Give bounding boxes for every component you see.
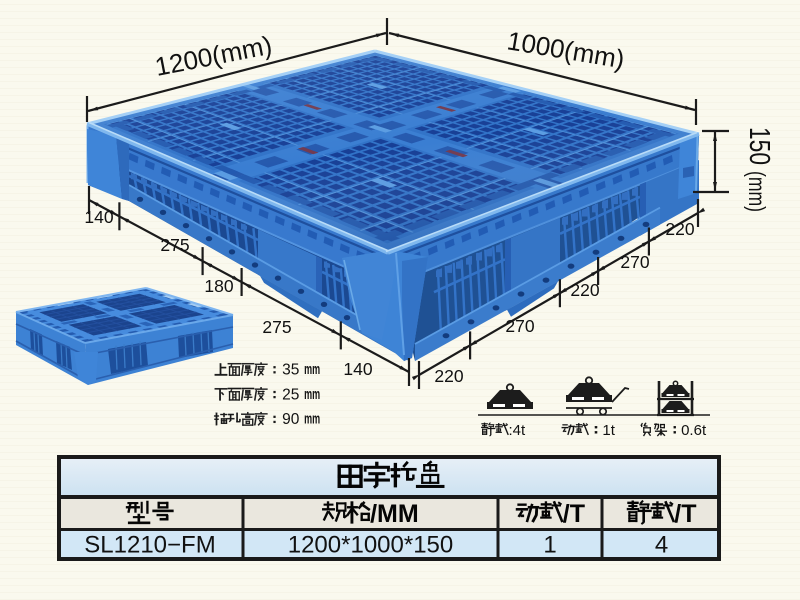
svg-text:35: 35 [282, 362, 299, 379]
svg-text:0.6t: 0.6t [681, 422, 707, 439]
svg-text:1t: 1t [602, 422, 615, 439]
svg-text:mm: mm [304, 362, 320, 378]
svg-text:275: 275 [262, 317, 291, 337]
svg-text:4: 4 [655, 532, 668, 559]
svg-text:180: 180 [204, 276, 233, 296]
svg-text:150: 150 [743, 127, 775, 165]
svg-text:1: 1 [543, 532, 556, 559]
svg-text:25: 25 [282, 386, 299, 403]
svg-text::4t: :4t [509, 422, 527, 439]
svg-text:1200*1000*150: 1200*1000*150 [288, 532, 454, 559]
svg-text:/MM: /MM [370, 500, 419, 528]
svg-text:220: 220 [434, 366, 463, 386]
svg-text:140: 140 [343, 359, 372, 379]
svg-text:90: 90 [282, 411, 300, 428]
svg-text:SL1210−FM: SL1210−FM [84, 532, 215, 559]
svg-text:270: 270 [620, 252, 649, 272]
svg-text:(mm): (mm) [744, 171, 770, 212]
svg-text:140: 140 [84, 207, 113, 227]
svg-text:mm: mm [304, 387, 320, 403]
svg-text:220: 220 [665, 219, 694, 239]
svg-text:220: 220 [570, 280, 599, 300]
svg-text:/T: /T [563, 500, 585, 528]
svg-text:mm: mm [304, 412, 320, 428]
svg-text:270: 270 [505, 316, 534, 336]
svg-text:/T: /T [674, 500, 696, 528]
svg-text:275: 275 [160, 235, 189, 255]
